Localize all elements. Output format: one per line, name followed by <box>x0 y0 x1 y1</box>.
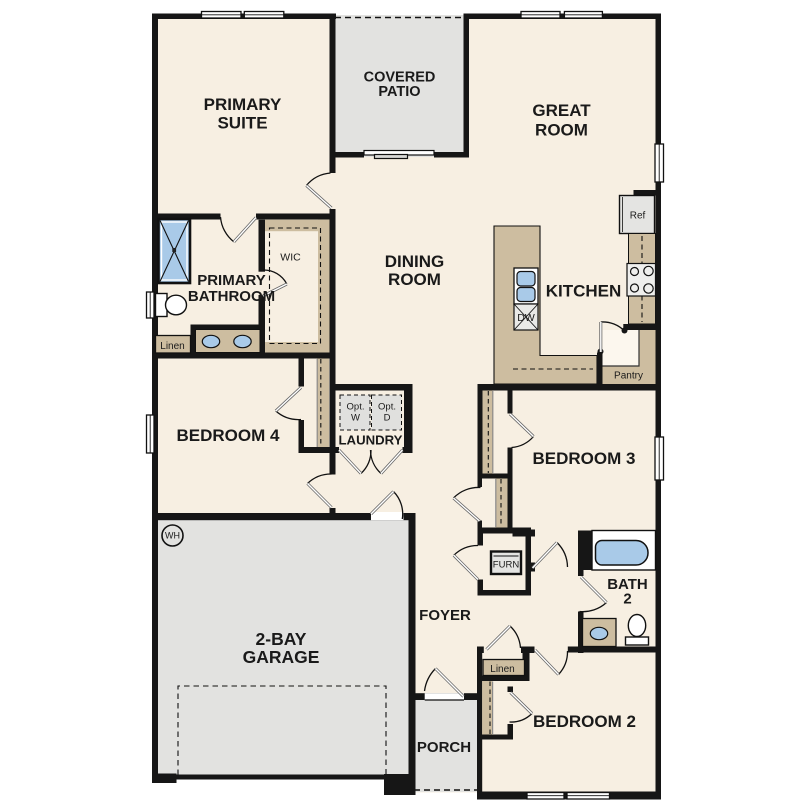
svg-text:WH: WH <box>165 531 180 541</box>
svg-text:FURN: FURN <box>493 560 520 571</box>
svg-text:LAUNDRY: LAUNDRY <box>339 432 403 447</box>
svg-text:W: W <box>351 413 360 424</box>
svg-text:PATIO: PATIO <box>378 84 420 100</box>
svg-text:PRIMARY: PRIMARY <box>197 272 266 289</box>
svg-text:BATHROOM: BATHROOM <box>188 288 275 305</box>
svg-text:DW: DW <box>517 312 535 324</box>
svg-text:2-BAY: 2-BAY <box>256 629 307 649</box>
svg-text:FOYER: FOYER <box>419 607 471 624</box>
svg-text:Opt.: Opt. <box>378 402 396 413</box>
svg-text:SUITE: SUITE <box>217 114 267 133</box>
svg-text:PORCH: PORCH <box>417 739 471 756</box>
svg-text:PRIMARY: PRIMARY <box>204 95 282 114</box>
svg-text:Linen: Linen <box>160 341 184 352</box>
svg-text:2: 2 <box>623 591 631 608</box>
svg-text:WIC: WIC <box>280 252 301 264</box>
svg-text:BEDROOM 2: BEDROOM 2 <box>533 712 636 731</box>
svg-text:KITCHEN: KITCHEN <box>546 282 622 301</box>
svg-text:ROOM: ROOM <box>535 121 588 140</box>
svg-text:BEDROOM 3: BEDROOM 3 <box>533 449 636 468</box>
svg-text:Opt.: Opt. <box>347 402 365 413</box>
svg-text:ROOM: ROOM <box>388 270 441 289</box>
svg-text:GREAT: GREAT <box>532 101 591 120</box>
svg-text:BEDROOM 4: BEDROOM 4 <box>177 426 281 445</box>
svg-text:Ref: Ref <box>630 211 646 222</box>
svg-text:D: D <box>384 413 391 424</box>
svg-text:Pantry: Pantry <box>614 371 643 382</box>
svg-text:DINING: DINING <box>385 252 445 271</box>
svg-text:GARAGE: GARAGE <box>243 647 320 667</box>
svg-text:Linen: Linen <box>490 664 514 675</box>
